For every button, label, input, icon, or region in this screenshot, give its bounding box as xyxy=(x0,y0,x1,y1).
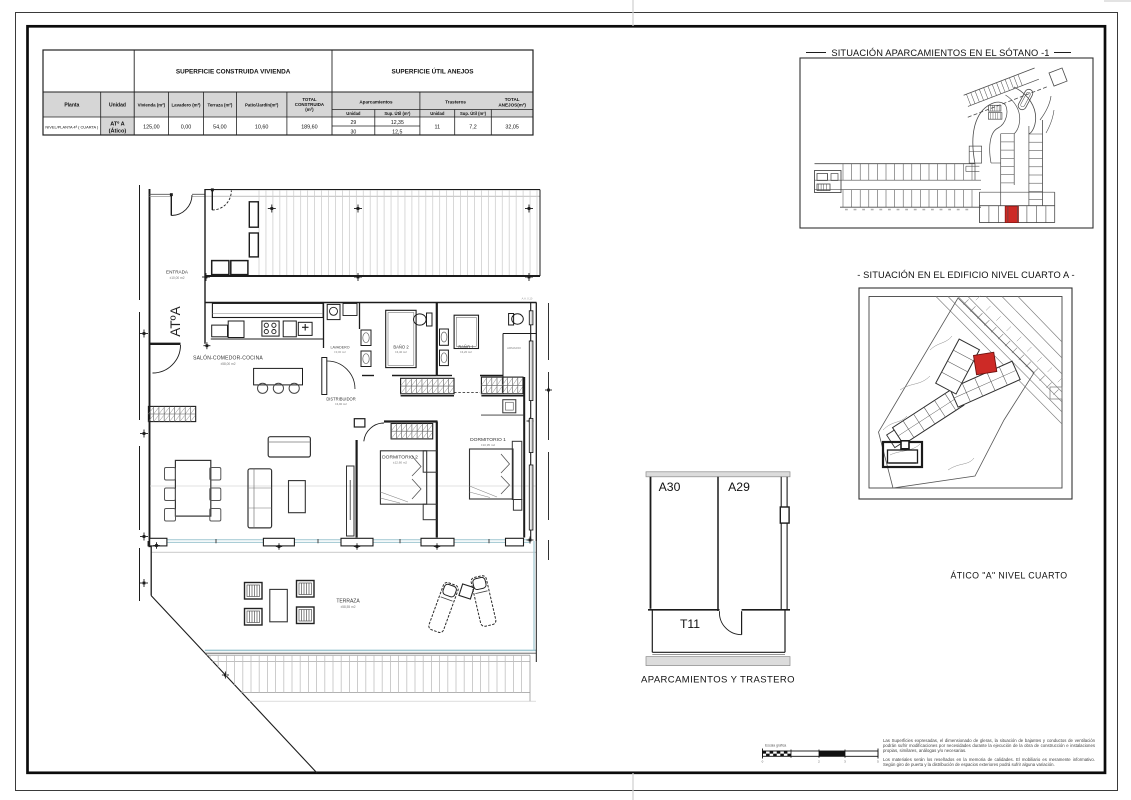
svg-text:SUPERFICIE ÚTIL ANEJOS: SUPERFICIE ÚTIL ANEJOS xyxy=(391,67,474,76)
svg-text:30: 30 xyxy=(351,129,357,135)
svg-text:±3,00 m2: ±3,00 m2 xyxy=(334,350,346,354)
svg-text:ATº A: ATº A xyxy=(110,122,124,128)
svg-text:12,35: 12,35 xyxy=(391,120,404,126)
svg-text:DORMITORIO 2: DORMITORIO 2 xyxy=(382,454,418,460)
svg-text:Unidad: Unidad xyxy=(109,103,126,109)
svg-text:3: 3 xyxy=(844,760,846,764)
svg-text:Escala gráfica: Escala gráfica xyxy=(765,744,786,748)
svg-text:DISTRIBUIDOR: DISTRIBUIDOR xyxy=(326,397,355,402)
svg-text:Trasteros: Trasteros xyxy=(445,100,466,105)
svg-text:A29: A29 xyxy=(728,480,750,494)
svg-text:BAÑO 1: BAÑO 1 xyxy=(458,345,474,350)
svg-text:5: 5 xyxy=(877,760,879,764)
svg-text:SUPERFICIE CONSTRUIDA VIVIENDA: SUPERFICIE CONSTRUIDA VIVIENDA xyxy=(176,69,291,76)
svg-text:125,00: 125,00 xyxy=(143,125,160,131)
svg-text:10,60: 10,60 xyxy=(255,125,269,131)
svg-text:A30: A30 xyxy=(659,480,681,494)
svg-text:0,00: 0,00 xyxy=(181,125,192,131)
svg-text:ÁTICO "A" NIVEL CUARTO: ÁTICO "A" NIVEL CUARTO xyxy=(950,571,1067,581)
svg-text:A.A. 0,10: A.A. 0,10 xyxy=(522,297,533,301)
svg-text:(m²): (m²) xyxy=(305,107,314,112)
svg-text:BAÑO 2: BAÑO 2 xyxy=(393,345,409,350)
svg-text:Lavadero (m²): Lavadero (m²) xyxy=(171,103,201,108)
svg-text:±58,00 m2: ±58,00 m2 xyxy=(220,362,235,366)
svg-text:Patio/Jardín(m²): Patio/Jardín(m²) xyxy=(245,103,279,108)
svg-text:189,60: 189,60 xyxy=(301,125,318,131)
svg-text:29: 29 xyxy=(351,120,357,126)
svg-text:Unidad: Unidad xyxy=(346,111,361,116)
svg-text:0: 0 xyxy=(762,760,764,764)
svg-text:- SITUACIÓN EN EL EDIFICIO NIV: - SITUACIÓN EN EL EDIFICIO NIVEL CUARTO … xyxy=(857,270,1074,280)
svg-text:TERRAZA: TERRAZA xyxy=(336,599,360,605)
svg-text:DORMITORIO 1: DORMITORIO 1 xyxy=(470,437,506,443)
svg-text:Sup. Útil (m²): Sup. Útil (m²) xyxy=(384,111,411,116)
svg-text:±4,40 m2: ±4,40 m2 xyxy=(395,350,407,354)
svg-text:Terraza (m²): Terraza (m²) xyxy=(207,103,232,108)
svg-text:SALÓN-COMEDOR-COCINA: SALÓN-COMEDOR-COCINA xyxy=(193,355,263,362)
svg-text:7,2: 7,2 xyxy=(469,125,477,131)
svg-text:±10,95 m2: ±10,95 m2 xyxy=(481,443,495,447)
svg-text:±12,60 m2: ±12,60 m2 xyxy=(393,461,407,465)
svg-text:Sup. Útil (m²): Sup. Útil (m²) xyxy=(460,111,487,116)
svg-text:12,5: 12,5 xyxy=(392,129,402,135)
svg-text:Unidad: Unidad xyxy=(430,111,445,116)
svg-text:11: 11 xyxy=(434,125,440,131)
svg-text:±4,20 m2: ±4,20 m2 xyxy=(460,350,472,354)
svg-text:32,05: 32,05 xyxy=(505,125,519,131)
svg-text:SITUACIÓN APARCAMIENTOS EN EL: SITUACIÓN APARCAMIENTOS EN EL SÓTANO -1 xyxy=(831,48,1049,58)
svg-text:ANEJOS(m²): ANEJOS(m²) xyxy=(498,103,526,108)
svg-text:Vivienda (m²): Vivienda (m²) xyxy=(138,103,166,108)
svg-text:ARMARIO: ARMARIO xyxy=(507,346,522,350)
svg-text:54,00: 54,00 xyxy=(213,125,227,131)
svg-text:±4,90 m2: ±4,90 m2 xyxy=(335,402,347,406)
svg-text:T11: T11 xyxy=(680,617,700,631)
svg-text:NIVEL/PLANTA 4ª ( CUARTA ): NIVEL/PLANTA 4ª ( CUARTA ) xyxy=(45,125,99,130)
svg-text:TOTAL: TOTAL xyxy=(505,97,520,102)
svg-text:(Ático): (Ático) xyxy=(109,128,127,135)
svg-text:Planta: Planta xyxy=(64,103,79,109)
svg-text:APARCAMIENTOS Y TRASTERO: APARCAMIENTOS Y TRASTERO xyxy=(641,675,795,686)
svg-text:ENTRADA: ENTRADA xyxy=(166,270,189,275)
svg-text:±58,55 m2: ±58,55 m2 xyxy=(340,605,355,609)
svg-text:±10,00 m2: ±10,00 m2 xyxy=(169,276,184,280)
svg-text:Aparcamientos: Aparcamientos xyxy=(359,100,393,105)
svg-text:2: 2 xyxy=(818,760,820,764)
svg-text:ATºA: ATºA xyxy=(168,305,183,336)
